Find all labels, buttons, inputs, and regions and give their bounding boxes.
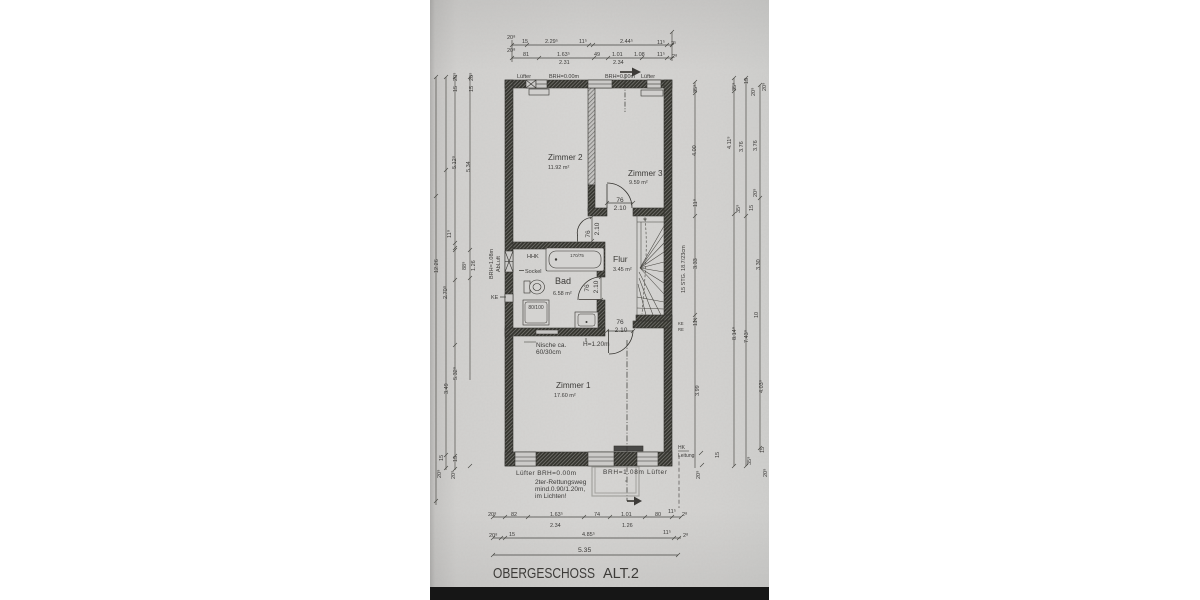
svg-text:12.26: 12.26 [434,259,440,273]
svg-text:35⁸: 35⁸ [735,205,742,213]
svg-text:15: 15 [453,456,459,462]
svg-text:76: 76 [616,197,624,204]
svg-text:3.76: 3.76 [753,140,759,151]
svg-text:8.14⁸: 8.14⁸ [731,327,738,340]
svg-text:35⁸: 35⁸ [731,83,738,91]
svg-text:Zimmer 1: Zimmer 1 [556,381,591,390]
svg-text:2⁸: 2⁸ [682,511,687,518]
svg-text:15: 15 [749,205,755,211]
svg-text:20⁸: 20⁸ [507,34,515,41]
svg-text:Nische ca.: Nische ca. [536,342,567,349]
svg-text:3.30: 3.30 [756,259,762,270]
svg-text:4.85⁵: 4.85⁵ [582,531,595,538]
svg-text:35⁸: 35⁸ [692,85,699,93]
svg-text:ALT.2: ALT.2 [603,565,639,582]
svg-text:74: 74 [594,512,600,518]
svg-text:11⁸: 11⁸ [692,318,699,326]
svg-text:10: 10 [754,312,760,318]
svg-text:Lüfter: Lüfter [517,74,531,80]
svg-text:20⁸: 20⁸ [750,88,757,96]
svg-text:Bad: Bad [555,276,571,286]
svg-text:HK: HK [678,445,686,451]
svg-text:6.58 m²: 6.58 m² [553,291,572,297]
svg-text:15: 15 [715,452,721,458]
svg-text:15: 15 [509,532,515,538]
svg-text:H=1.20m: H=1.20m [583,341,610,348]
svg-text:2ter-Rettungsweg: 2ter-Rettungsweg [535,479,587,486]
svg-text:HHK: HHK [527,254,539,260]
svg-text:9.59 m²: 9.59 m² [629,180,648,186]
svg-text:2.10: 2.10 [614,205,627,212]
svg-text:BRH=0.00m: BRH=0.00m [549,74,580,80]
svg-text:3.99: 3.99 [695,385,701,396]
svg-text:2.10: 2.10 [594,222,601,235]
svg-text:BRH=1.08m Lüfter: BRH=1.08m Lüfter [603,469,668,476]
svg-text:170/75: 170/75 [570,253,584,258]
svg-text:5.34: 5.34 [466,161,472,172]
svg-text:20⁸: 20⁸ [761,83,768,91]
svg-text:KE: KE [678,321,684,326]
svg-text:3.49: 3.49 [444,383,450,394]
svg-text:88⁸: 88⁸ [461,262,468,270]
svg-text:5.35: 5.35 [578,547,591,554]
svg-text:BRH=0.00m: BRH=0.00m [605,74,636,80]
svg-text:82: 82 [511,512,517,518]
svg-text:15: 15 [469,86,475,92]
svg-text:15: 15 [744,78,750,84]
svg-text:Lüfter: Lüfter [641,74,655,80]
svg-text:20⁸: 20⁸ [752,189,759,197]
svg-text:3.33: 3.33 [693,258,699,269]
svg-text:11⁵: 11⁵ [657,51,665,58]
svg-text:80: 80 [655,512,661,518]
svg-text:2⁸: 2⁸ [672,53,677,60]
svg-text:Zimmer 3: Zimmer 3 [628,169,663,178]
svg-text:im Lichten!: im Lichten! [535,493,567,500]
svg-text:KE: KE [491,295,499,301]
svg-text:AbLuft: AbLuft [496,256,502,272]
svg-text:4.03⁸: 4.03⁸ [758,380,765,393]
svg-text:15 STG. 18.7/23cm: 15 STG. 18.7/23cm [681,245,687,293]
svg-text:76: 76 [585,230,592,238]
svg-text:11⁵: 11⁵ [657,39,665,46]
svg-text:20⁸: 20⁸ [452,73,459,81]
svg-text:35⁸: 35⁸ [746,457,753,465]
svg-text:11⁸: 11⁸ [446,230,453,238]
svg-text:1.26: 1.26 [622,523,633,529]
svg-text:mind.0.90/1.20m,: mind.0.90/1.20m, [535,486,585,493]
svg-text:RE: RE [678,327,684,332]
svg-text:2.29⁵: 2.29⁵ [545,38,558,45]
svg-text:4.11⁸: 4.11⁸ [726,136,733,149]
svg-text:15: 15 [453,86,459,92]
svg-text:Lüfter BRH=0.00m: Lüfter BRH=0.00m [516,470,576,477]
svg-text:OBERGESCHOSS: OBERGESCHOSS [493,565,595,582]
svg-text:2.70⁸: 2.70⁸ [442,286,449,299]
svg-text:BRH=1.08m: BRH=1.08m [489,248,495,279]
svg-text:15: 15 [522,39,528,45]
svg-text:1.01: 1.01 [612,52,623,58]
svg-text:11⁸: 11⁸ [692,199,699,207]
svg-text:Sockel: Sockel [525,269,542,275]
svg-text:Leitung: Leitung [678,453,695,459]
svg-text:1.63⁵: 1.63⁵ [557,51,570,58]
svg-text:20⁸: 20⁸ [762,469,769,477]
svg-text:2.34: 2.34 [550,523,561,529]
svg-text:Flur: Flur [613,254,628,264]
svg-text:2.34: 2.34 [613,60,624,66]
svg-text:2⁵: 2⁵ [671,40,676,47]
svg-text:7.43⁸: 7.43⁸ [743,330,750,343]
svg-text:15: 15 [760,447,766,453]
svg-text:11⁵: 11⁵ [663,529,671,536]
svg-text:1.63⁵: 1.63⁵ [550,511,563,518]
svg-text:20⁸: 20⁸ [436,470,443,478]
svg-text:3.45 m²: 3.45 m² [613,267,632,273]
svg-text:2.44⁵: 2.44⁵ [620,38,633,45]
svg-text:17.60 m²: 17.60 m² [554,393,576,399]
svg-text:5.32⁸: 5.32⁸ [452,367,459,380]
svg-text:1.26: 1.26 [471,260,477,271]
svg-text:80/100: 80/100 [528,305,544,311]
svg-text:2.31: 2.31 [559,60,570,66]
svg-text:20⁸: 20⁸ [468,73,475,81]
svg-text:20⁸: 20⁸ [695,471,702,479]
svg-text:11⁵: 11⁵ [668,508,676,515]
svg-text:76: 76 [616,319,624,326]
svg-text:60/30cm: 60/30cm [536,349,561,356]
svg-text:1.01: 1.01 [621,512,632,518]
svg-text:20⁸: 20⁸ [488,511,496,518]
svg-text:2.10: 2.10 [615,327,628,334]
svg-text:49: 49 [594,52,600,58]
svg-text:4.00: 4.00 [692,145,698,156]
svg-text:81: 81 [523,52,529,58]
svg-text:15: 15 [439,455,445,461]
svg-text:11.92 m²: 11.92 m² [548,165,569,171]
svg-text:2.10: 2.10 [593,280,600,293]
svg-text:20⁸: 20⁸ [507,47,515,54]
svg-text:1.08: 1.08 [634,52,645,58]
svg-text:76: 76 [584,284,591,292]
svg-text:2⁸: 2⁸ [683,532,688,539]
svg-text:20⁸: 20⁸ [450,471,457,479]
svg-text:20⁸: 20⁸ [489,532,497,539]
svg-text:Zimmer 2: Zimmer 2 [548,153,583,162]
svg-text:11⁵: 11⁵ [579,38,587,45]
svg-text:5.12⁸: 5.12⁸ [451,156,458,169]
svg-text:3.76: 3.76 [739,141,745,152]
